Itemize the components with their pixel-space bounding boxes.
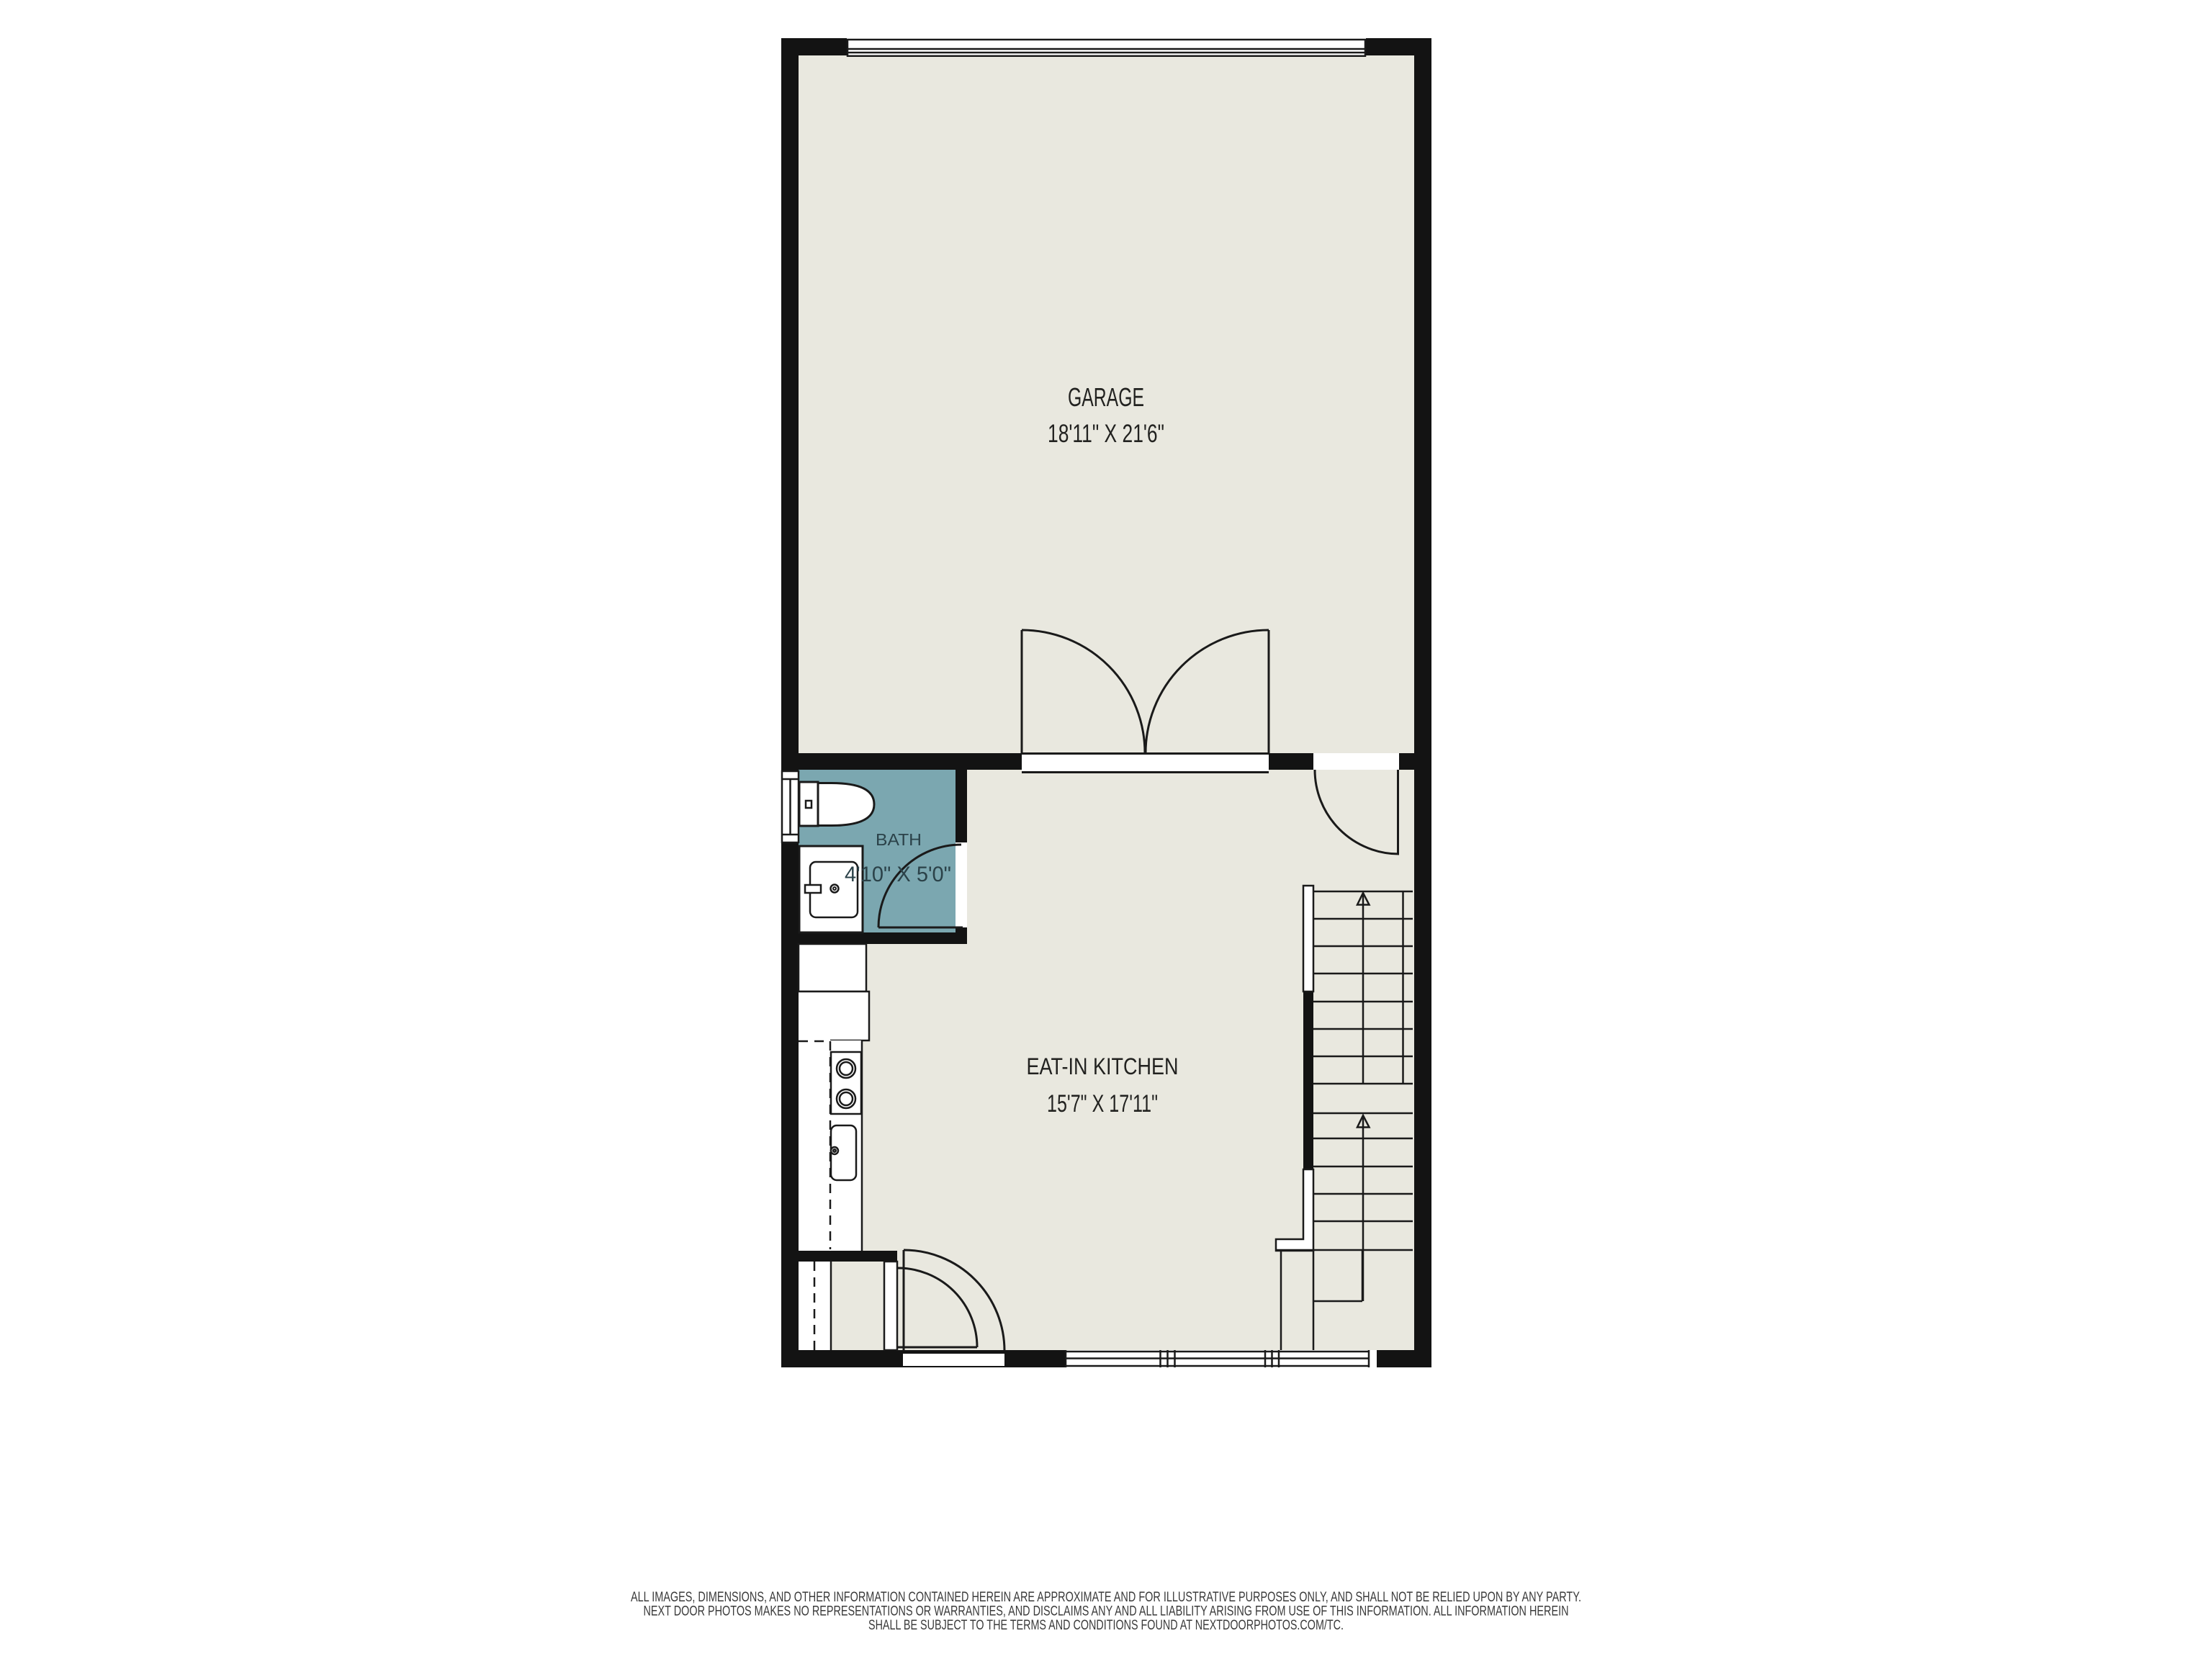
svg-text:4'10" X 5'0": 4'10" X 5'0": [845, 863, 951, 886]
svg-text:GARAGE: GARAGE: [1068, 382, 1144, 412]
svg-text:15'7" X 17'11": 15'7" X 17'11": [1047, 1090, 1158, 1118]
svg-text:BATH: BATH: [876, 830, 922, 849]
svg-text:EAT-IN KITCHEN: EAT-IN KITCHEN: [1027, 1053, 1179, 1079]
svg-text:18'11" X 21'6": 18'11" X 21'6": [1048, 420, 1164, 448]
svg-text:SHALL BE SUBJECT TO THE TERMS: SHALL BE SUBJECT TO THE TERMS AND CONDIT…: [868, 1617, 1344, 1633]
